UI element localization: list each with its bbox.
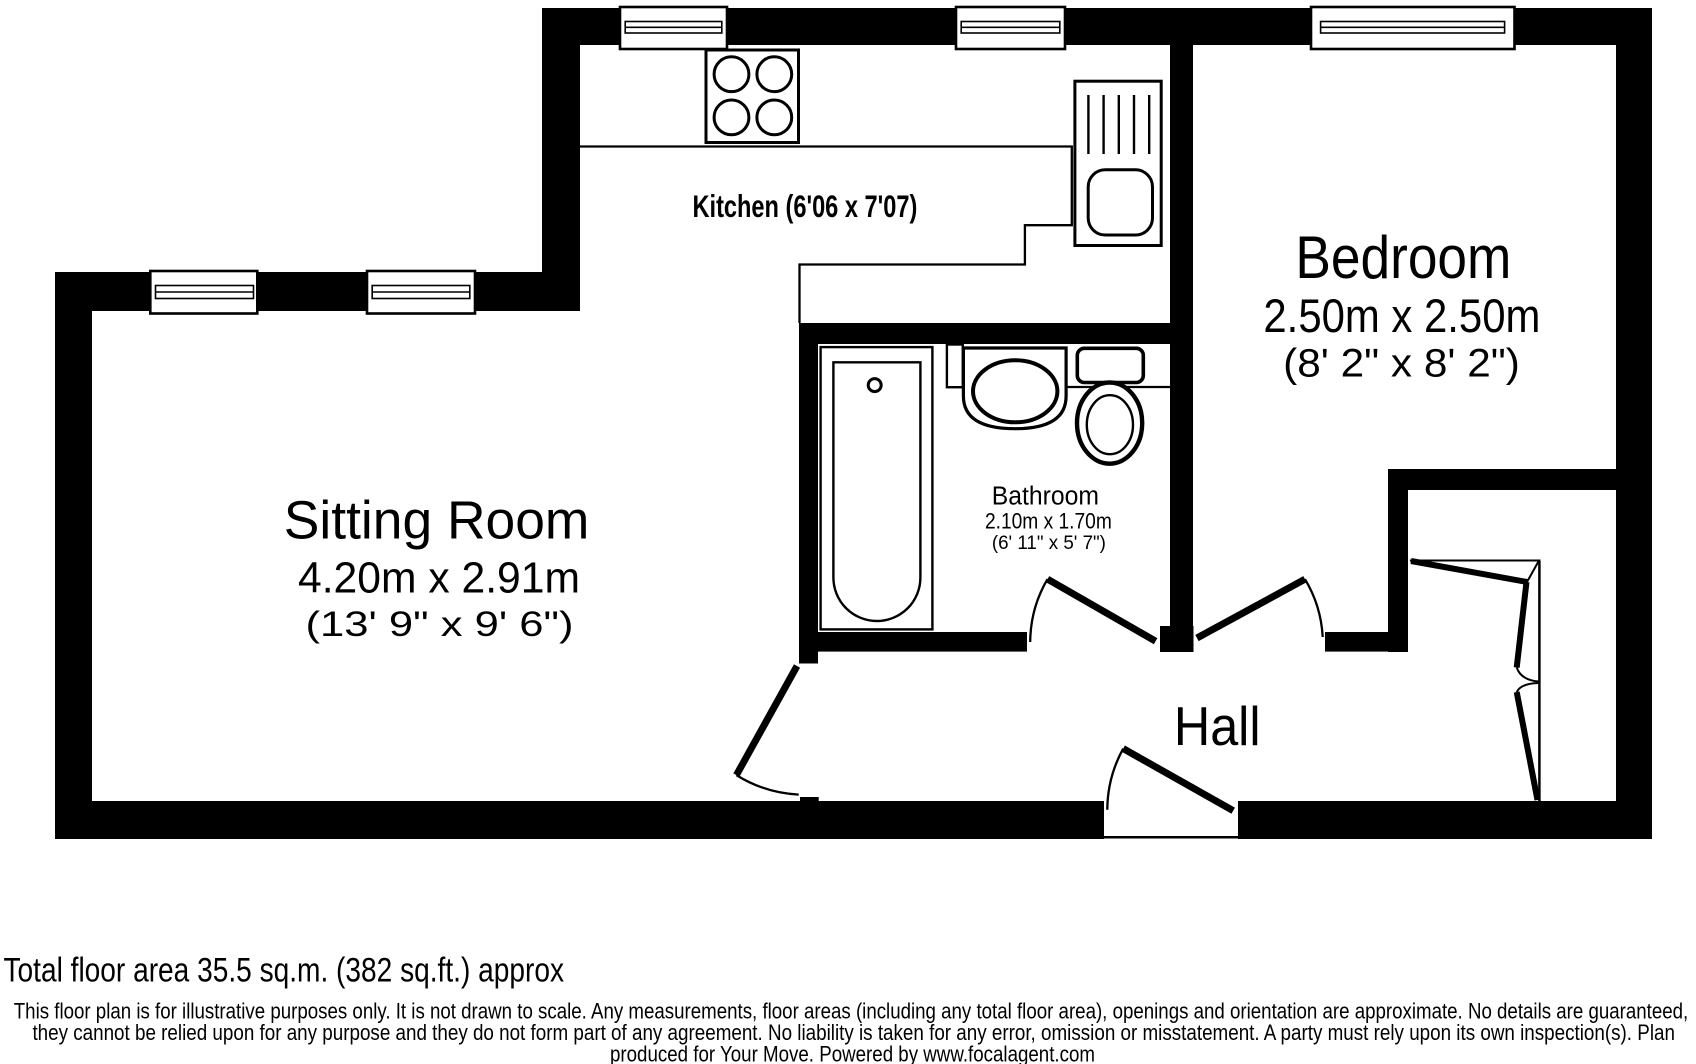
svg-text:2.10m x 1.70m: 2.10m x 1.70m <box>985 508 1112 533</box>
svg-text:2.50m x 2.50m: 2.50m x 2.50m <box>1263 289 1540 342</box>
svg-text:(13' 9" x 9' 6"): (13' 9" x 9' 6") <box>306 605 574 644</box>
svg-text:Kitchen (6'06 x 7'07): Kitchen (6'06 x 7'07) <box>693 189 918 224</box>
svg-text:Bathroom: Bathroom <box>992 482 1099 510</box>
svg-text:(8' 2" x 8' 2"): (8' 2" x 8' 2") <box>1283 341 1520 385</box>
svg-text:Hall: Hall <box>1174 696 1261 757</box>
svg-text:Sitting Room: Sitting Room <box>284 491 590 551</box>
svg-text:Total floor area 35.5 sq.m. (3: Total floor area 35.5 sq.m. (382 sq.ft.)… <box>4 952 565 990</box>
svg-text:Bedroom: Bedroom <box>1295 224 1511 291</box>
svg-text:produced for Your Move. Powere: produced for Your Move. Powered by www.f… <box>610 1042 1095 1064</box>
svg-text:4.20m x 2.91m: 4.20m x 2.91m <box>298 554 580 603</box>
svg-text:(6' 11" x 5' 7"): (6' 11" x 5' 7") <box>992 533 1106 554</box>
